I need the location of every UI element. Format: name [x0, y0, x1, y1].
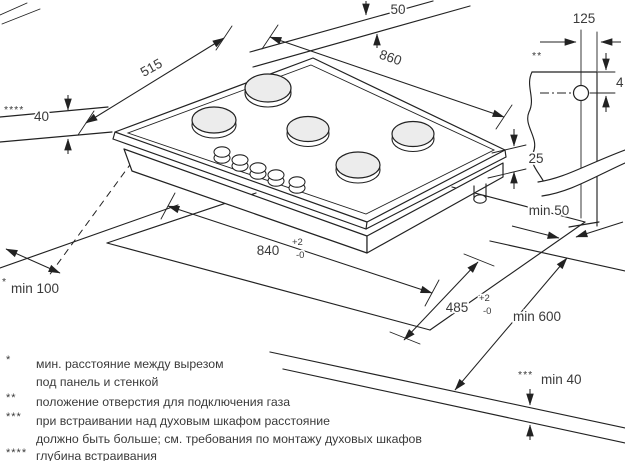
- knob-3: [250, 163, 266, 173]
- label-840-tol-minus: -0: [296, 250, 304, 261]
- knob-4: [268, 170, 284, 180]
- label-40: 40: [34, 109, 49, 124]
- footnote-1-marker: *: [6, 354, 11, 366]
- label-125: 125: [573, 11, 596, 26]
- burner-2: [192, 107, 236, 133]
- label-min600: min 600: [513, 309, 561, 324]
- gas-hole: [574, 86, 589, 101]
- label-gas-hole-marker: **: [532, 50, 542, 62]
- burner-1: [245, 74, 291, 102]
- knob-2: [232, 155, 248, 165]
- dim-860-tick-right: [496, 105, 512, 129]
- burner-3: [287, 117, 329, 142]
- panel-break-wavy-edge: [528, 72, 547, 190]
- footnote-3-line-2: должно быть больше; см. требования по мо…: [36, 432, 422, 446]
- hob-edge-left: [113, 132, 115, 139]
- label-min40: min 40: [541, 372, 582, 387]
- footnote-4-line-1: глубина встраивания: [36, 449, 157, 461]
- label-40-marker: ****: [4, 104, 24, 116]
- dim-485-tick-bottom: [390, 332, 420, 344]
- label-50: 50: [390, 2, 405, 17]
- label-515: 515: [138, 56, 165, 80]
- label-860: 860: [377, 47, 403, 69]
- hob-edge-right: [505, 150, 506, 157]
- footnotes: * мин. расстояние между вырезом под пане…: [6, 354, 422, 461]
- dim-min600-line: [455, 258, 567, 390]
- footnote-3-line-1: при встраивании над духовым шкафом расст…: [36, 414, 330, 428]
- footnote-2-marker: **: [6, 392, 17, 404]
- label-min100: min 100: [11, 281, 59, 296]
- dim-515-tick-top: [216, 26, 232, 50]
- footnote-3-marker: ***: [6, 411, 22, 423]
- dim-840-tick-right: [425, 280, 439, 306]
- diagram-canvas: 50 515 860 125 ** 4 25 min 50 840 +2 -0 …: [0, 0, 625, 461]
- rear-wall-line-2: [253, 6, 470, 67]
- installation-diagram: 50 515 860 125 ** 4 25 min 50 840 +2 -0 …: [0, 0, 625, 461]
- footnote-2-line-1: положение отверстия для подключения газа: [36, 395, 290, 409]
- corner-projection-dashed: [48, 162, 132, 277]
- label-485: 485: [446, 300, 469, 315]
- gas-hole-detail-view: [528, 30, 625, 227]
- label-485-tol-minus: -0: [483, 306, 491, 317]
- label-45: 4: [616, 75, 624, 90]
- label-min100-marker: *: [2, 276, 7, 288]
- footnote-4-marker: ****: [6, 447, 27, 459]
- dim-485-tick-top: [464, 254, 494, 266]
- panel-break-gap: [538, 150, 625, 196]
- dim-min100-line: [6, 249, 60, 273]
- label-min40-marker: ***: [518, 369, 533, 381]
- dim-515-tick-bottom: [78, 111, 94, 135]
- burner-4: [392, 122, 434, 147]
- label-min50: min 50: [529, 203, 570, 218]
- worktop-back-edge: [490, 241, 625, 271]
- label-25: 25: [528, 151, 543, 166]
- burner-5: [336, 152, 380, 178]
- hob: [113, 58, 506, 253]
- embed-bottom-line: [0, 132, 112, 142]
- label-840: 840: [257, 243, 280, 258]
- wall-corner-line-2: [0, 3, 27, 15]
- dim-min50-arrow-left: [512, 226, 559, 238]
- gas-pipe-cap: [474, 195, 486, 203]
- knob-1: [214, 147, 230, 157]
- label-485-tol-plus: +2: [479, 293, 490, 304]
- dim-840-tick-left: [161, 193, 175, 219]
- label-840-tol-plus: +2: [292, 237, 303, 248]
- footnote-1-line-1: мин. расстояние между вырезом: [36, 357, 224, 371]
- knob-5: [289, 177, 305, 187]
- footnote-1-line-2: под панель и стенкой: [36, 375, 158, 389]
